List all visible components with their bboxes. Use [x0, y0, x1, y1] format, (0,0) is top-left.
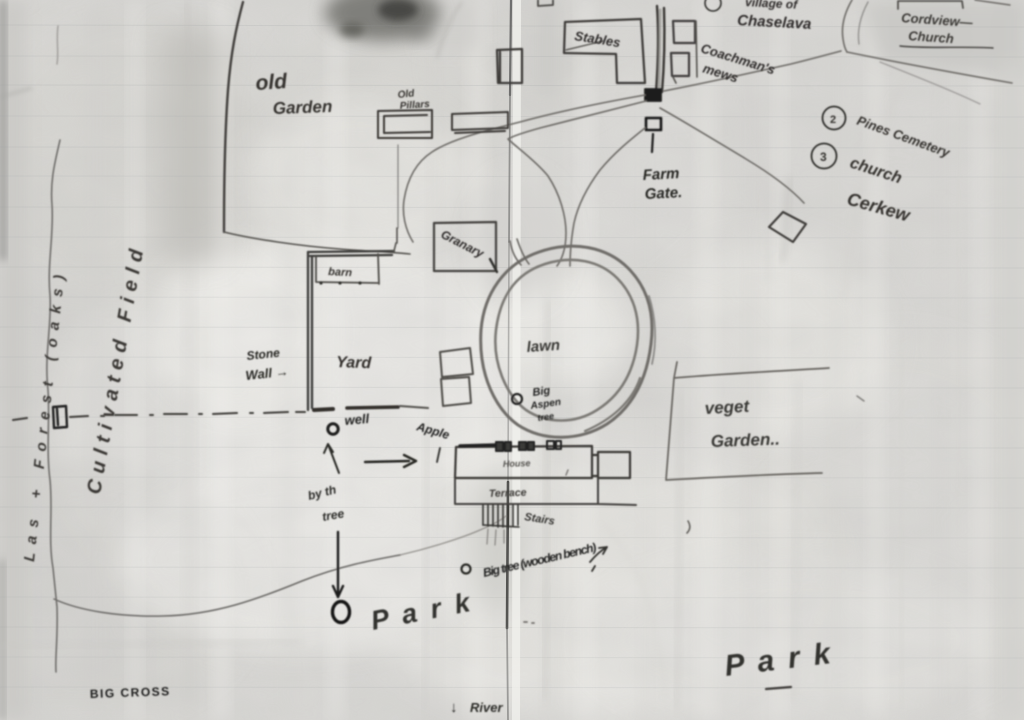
svg-text:Old: Old	[397, 88, 416, 101]
svg-text:veget: veget	[704, 397, 751, 418]
svg-text:Garden..: Garden..	[710, 430, 780, 451]
svg-text:Yard: Yard	[336, 354, 373, 372]
svg-text:Garden: Garden	[272, 97, 332, 118]
svg-text:House: House	[503, 458, 531, 469]
svg-text:Pillars: Pillars	[399, 99, 430, 112]
svg-text:old: old	[255, 70, 289, 95]
svg-text:3: 3	[820, 150, 827, 164]
svg-text:well: well	[344, 411, 370, 428]
svg-text:River: River	[470, 700, 503, 715]
svg-text:Farm: Farm	[642, 165, 680, 184]
svg-text:↓: ↓	[450, 699, 458, 716]
svg-text:Big: Big	[532, 385, 551, 399]
svg-text:BIG CROSS: BIG CROSS	[90, 684, 171, 701]
svg-text:Church: Church	[908, 28, 954, 46]
svg-text:2: 2	[830, 114, 836, 126]
svg-text:Gate.: Gate.	[644, 184, 682, 203]
svg-text:lawn: lawn	[526, 337, 560, 356]
svg-text:Terrace: Terrace	[489, 487, 527, 500]
svg-text:barn: barn	[328, 266, 353, 279]
